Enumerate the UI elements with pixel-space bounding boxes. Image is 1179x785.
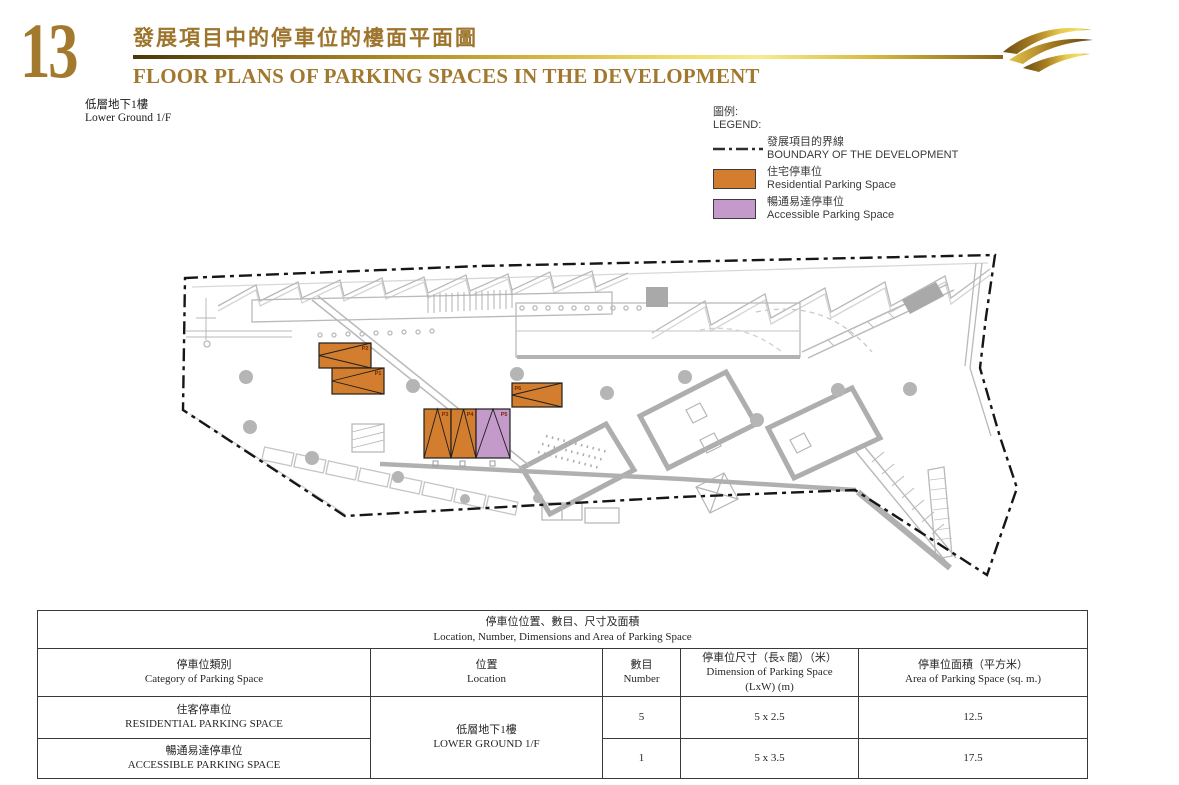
table-title-en: Location, Number, Dimensions and Area of… [42,630,1083,644]
location-cell: 低層地下1樓 LOWER GROUND 1/F [371,696,603,778]
residential-number-cell: 5 [603,696,681,738]
parking-summary-table: 停車位位置、數目、尺寸及面積 Location, Number, Dimensi… [37,610,1088,779]
parking-stall-P4: P4 [451,409,476,458]
parking-stall-P2: P2 [319,343,371,368]
parking-stall-P5: P5 [476,409,510,458]
stall-label-P3: P3 [442,412,449,418]
table-title-cell: 停車位位置、數目、尺寸及面積 Location, Number, Dimensi… [38,611,1088,649]
accessible-number-cell: 1 [603,738,681,778]
parking-stalls-layer: P2P1P3P4P5P6 [319,343,562,458]
stall-label-P5: P5 [501,412,508,418]
stall-label-P1: P1 [375,371,382,377]
plan-linework [186,263,991,568]
brochure-page: 13 發展項目中的停車位的樓面平面圖 FLOOR PLANS OF PARKIN… [0,0,1179,785]
table-title-zh: 停車位位置、數目、尺寸及面積 [42,615,1083,629]
col-header-number: 數目 Number [603,649,681,697]
stall-label-P4: P4 [467,412,475,418]
stall-label-P6: P6 [515,386,522,392]
accessible-category-cell: 暢通易達停車位 ACCESSIBLE PARKING SPACE [38,738,371,778]
stall-label-P2: P2 [362,346,369,352]
table-row-residential: 住客停車位 RESIDENTIAL PARKING SPACE 低層地下1樓 L… [38,696,1088,738]
col-header-dimension: 停車位尺寸（長x 闊）（米） Dimension of Parking Spac… [681,649,859,697]
parking-stall-P3: P3 [424,409,451,458]
accessible-dimension-cell: 5 x 3.5 [681,738,859,778]
col-header-location: 位置 Location [371,649,603,697]
residential-category-cell: 住客停車位 RESIDENTIAL PARKING SPACE [38,696,371,738]
accessible-area-cell: 17.5 [859,738,1088,778]
parking-stall-P6: P6 [512,383,562,407]
parking-stall-P1: P1 [332,368,384,394]
residential-area-cell: 12.5 [859,696,1088,738]
col-header-area: 停車位面積（平方米） Area of Parking Space (sq. m.… [859,649,1088,697]
residential-dimension-cell: 5 x 2.5 [681,696,859,738]
col-header-category: 停車位類別 Category of Parking Space [38,649,371,697]
